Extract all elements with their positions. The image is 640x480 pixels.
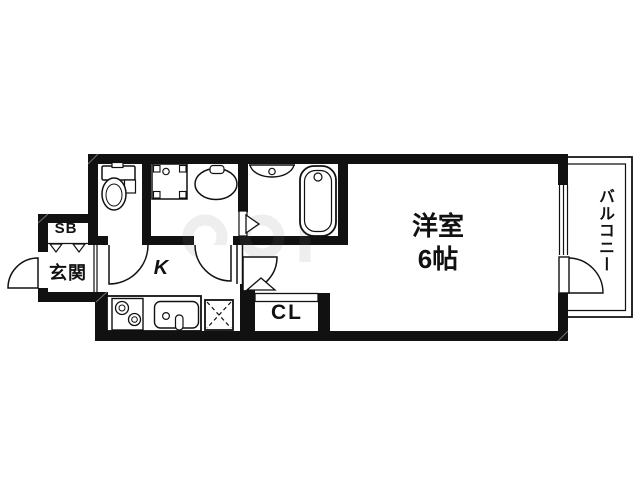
floorplan: SB 玄関 K CL 洋室 6帖 バルコニー	[0, 0, 640, 480]
washbasin-icon	[195, 166, 237, 200]
entrance-label: 玄関	[42, 259, 94, 285]
refrigerator-space-icon	[205, 300, 233, 330]
stove-icon	[112, 299, 143, 331]
main-room-label: 洋室 6帖	[386, 210, 490, 276]
toilet-door-arc	[109, 245, 148, 284]
shoe-box-label: SB	[46, 220, 86, 237]
shoebox-door-marker	[73, 244, 85, 252]
main-room-size: 6帖	[386, 243, 490, 276]
kitchen-counter	[107, 296, 201, 331]
balcony-label: バルコニー	[592, 188, 616, 298]
entrance-door-arc	[8, 258, 38, 288]
floorplan-drawing	[0, 0, 640, 480]
toilet-icon	[102, 163, 136, 211]
washing-machine-pan-icon	[152, 164, 187, 199]
kitchen-label: K	[146, 257, 176, 280]
window-icon	[558, 185, 568, 255]
shoebox-door-marker	[50, 244, 62, 252]
kitchen-sink-icon	[155, 302, 199, 331]
washroom-door-arc	[195, 245, 231, 281]
main-room-name: 洋室	[386, 210, 490, 243]
bathroom-sink-icon	[249, 165, 295, 177]
bathtub-icon	[300, 166, 336, 236]
balcony-door-leaf	[559, 257, 569, 293]
closet-label: CL	[260, 301, 314, 325]
